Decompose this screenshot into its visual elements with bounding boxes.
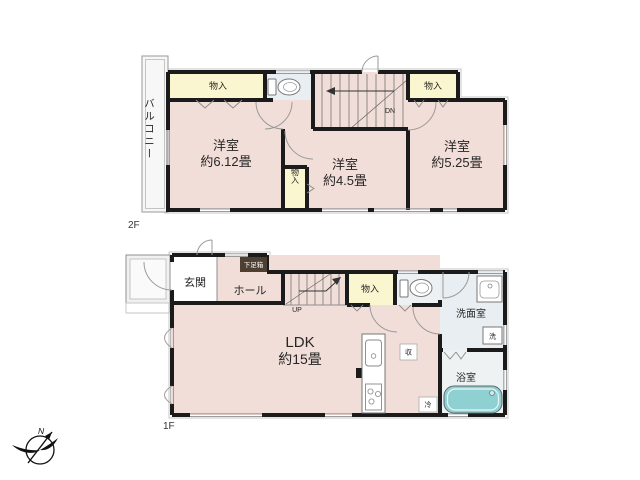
room-6-12-name: 洋室 [213,138,239,153]
floor-plan-2f: バルコニー 物入 物入 物入 DN 洋室 約6.12畳 洋室 約4.5畳 洋室 … [128,56,508,231]
room-6-12-size: 約6.12畳 [200,154,251,169]
toilet-icon-2f [268,79,300,95]
balcony-label: バルコニー [143,98,155,161]
washroom-label: 洗面室 [456,307,486,320]
closet-label: 収 [405,349,412,357]
hall-label: ホール [234,284,267,297]
floor-plan-1f: 下足箱 洗 [126,240,508,432]
compass-north-label: N [38,426,45,436]
floor-label-1f: 1F [163,421,175,432]
storage-1f-label: 物入 [361,283,379,294]
shoe-cabinet-label: 下足箱 [244,260,264,269]
floorplan-drawing: バルコニー 物入 物入 物入 DN 洋室 約6.12畳 洋室 約4.5畳 洋室 … [0,0,640,480]
storage-2f-left-label: 物入 [209,80,227,91]
vanity-sink-icon [477,276,502,302]
washing-machine-label: 洗 [489,332,496,341]
ldk-size-label: 約15畳 [278,351,322,367]
ldk-label: LDK [285,334,314,351]
bathtub-icon [444,386,502,413]
kitchen-counter-icon [362,334,385,413]
room-4-5-size: 約4.5畳 [323,173,367,188]
entrance-step [126,303,170,313]
compass-icon: N [12,426,58,464]
fridge-label: 冷 [425,400,432,409]
room-5-25-size: 約5.25畳 [431,155,482,170]
entrance-label: 玄関 [184,275,206,289]
floorplan-page: バルコニー 物入 物入 物入 DN 洋室 約6.12畳 洋室 約4.5畳 洋室 … [0,0,640,480]
storage-2f-right-label: 物入 [424,80,442,91]
stairs-dn-label: DN [385,108,395,115]
room-5-25-name: 洋室 [444,139,470,154]
bathroom-label: 浴室 [456,371,476,384]
floor-label-2f: 2F [128,220,140,231]
kitchen-wall-stub [356,368,362,378]
room-4-5-name: 洋室 [332,157,358,172]
entrance-porch-inner [130,259,166,299]
storage-2f-small-label: 物入 [291,167,300,184]
toilet-icon-1f [400,280,432,298]
stairs-up-label: UP [292,307,302,314]
